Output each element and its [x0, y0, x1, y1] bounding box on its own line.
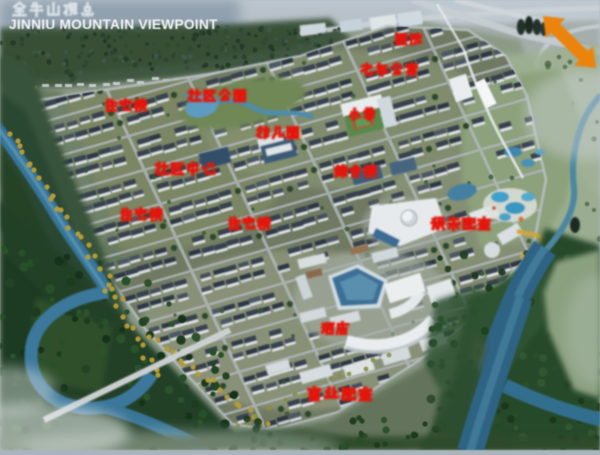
svg-text:JINNIU MOUNTAIN VIEWPOINT: JINNIU MOUNTAIN VIEWPOINT: [9, 17, 218, 32]
